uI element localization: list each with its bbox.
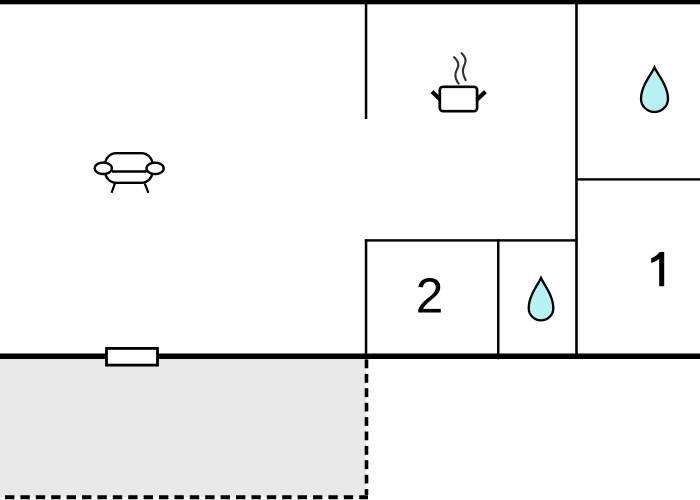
svg-text:2: 2 xyxy=(416,268,444,323)
